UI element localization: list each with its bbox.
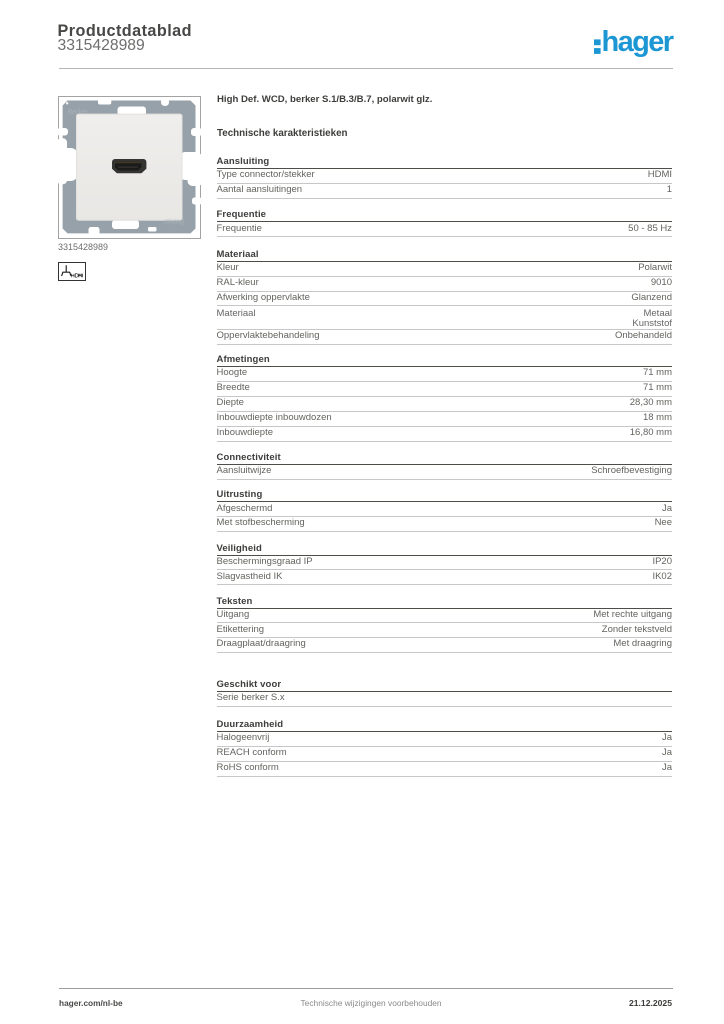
svg-text:Berker: Berker [163,217,184,224]
svg-text:hager: hager [602,26,674,58]
